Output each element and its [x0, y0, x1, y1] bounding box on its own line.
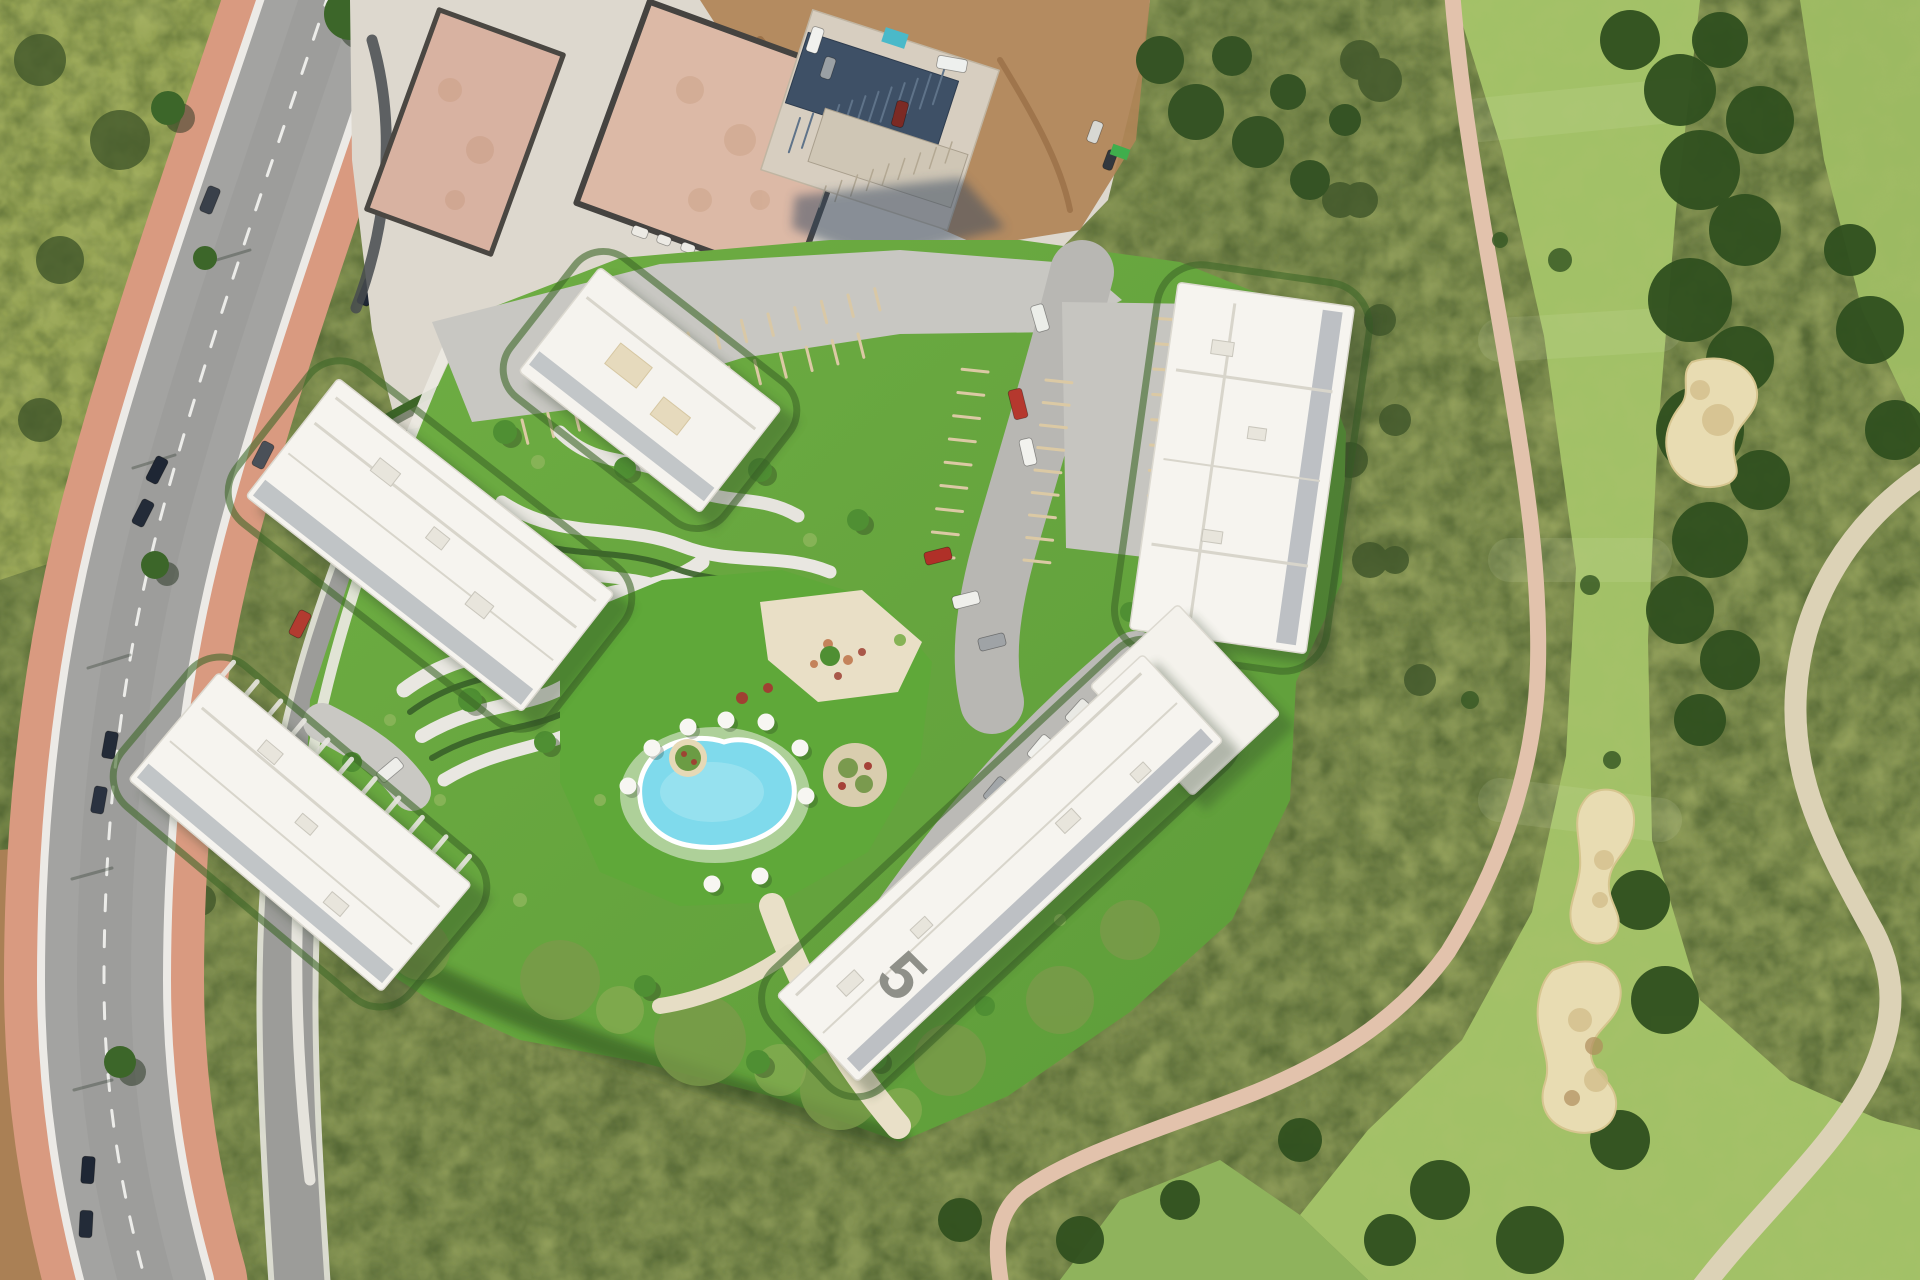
aerial-screenshot-root: 5	[0, 0, 1920, 1280]
lawn-bushes-item	[894, 634, 906, 646]
fairway-mow-stripes-item	[1500, 330, 1660, 340]
flower-clusters-item	[736, 692, 748, 704]
scrub-left-clumps-item	[36, 236, 84, 284]
play-equipment-item	[843, 655, 853, 665]
lawn-bushes-item	[803, 533, 817, 547]
slab-west-texture-item	[466, 136, 494, 164]
play-equipment-dark-item	[834, 672, 842, 680]
play-equipment-item	[810, 660, 818, 668]
bunker-brown-patches-item	[1585, 1037, 1603, 1055]
scrub-strip-right-of-site-item	[1358, 58, 1402, 102]
fairway-small-trees-item	[1548, 248, 1572, 272]
golf-tree-band-item	[1631, 966, 1699, 1034]
golf-tree-band-item	[1364, 1214, 1416, 1266]
pool-umbrellas-item	[620, 778, 637, 795]
lawn-trees-item	[493, 420, 517, 444]
pool-umbrellas-item	[792, 740, 809, 757]
flower-clusters-item	[864, 762, 872, 770]
golf-tree-band-item	[1646, 576, 1714, 644]
bunker-sand-shading-item	[1690, 380, 1710, 400]
fairway-small-trees-item	[1492, 232, 1508, 248]
golf-tree-band-item	[1600, 10, 1660, 70]
golf-tree-band-item	[1709, 194, 1781, 266]
bunker-sand-shading-item	[1594, 850, 1614, 870]
pool-island-planting	[675, 745, 701, 771]
slab-east-texture-item	[676, 76, 704, 104]
trees-east-of-construction-item	[1136, 36, 1184, 84]
street-trees-item	[151, 91, 185, 125]
slab-east-texture-item	[688, 188, 712, 212]
golf-tree-band-item	[1726, 86, 1794, 154]
golf-tree-band-item	[1674, 694, 1726, 746]
scrub-strip-right-of-site-item	[1352, 542, 1388, 578]
bunker-sand-shading-item	[1584, 1068, 1608, 1092]
play-equipment-dark-item	[858, 648, 866, 656]
golf-tree-band-item	[1660, 130, 1740, 210]
fairway-small-trees-item	[1580, 575, 1600, 595]
flower-clusters-item	[838, 782, 846, 790]
golf-tree-band-item	[1160, 1180, 1200, 1220]
bunker-sand-shading-item	[1568, 1008, 1592, 1032]
parked-cars-main-road-item	[79, 1210, 93, 1238]
lawn-trees-item	[820, 646, 840, 666]
flower-clusters-item	[763, 683, 773, 693]
pool-umbrellas-item	[644, 740, 661, 757]
bunker-sand-shading-item	[1702, 404, 1734, 436]
golf-tree-band-item	[1278, 1118, 1322, 1162]
playground-planting-item	[855, 775, 873, 793]
scrub-strip-right-of-site-item	[1342, 182, 1378, 218]
lawn-trees-item	[634, 975, 656, 997]
scrub-strip-right-of-site-item	[1379, 404, 1411, 436]
pool-island-flowers-item	[681, 751, 687, 757]
lawn-trees-item	[746, 1050, 770, 1074]
street-trees-item	[193, 246, 217, 270]
scrub-left-clumps-item	[90, 110, 150, 170]
parked-cars-main-road-item	[81, 1156, 96, 1184]
street-trees-item	[141, 551, 169, 579]
golf-tree-band-item	[1410, 1160, 1470, 1220]
trees-east-of-construction-item	[1168, 84, 1224, 140]
bunker-sand-shading-item	[1592, 892, 1608, 908]
golf-tree-band-item	[1672, 502, 1748, 578]
trees-east-of-construction-item	[1329, 104, 1361, 136]
golf-tree-band-item	[1692, 12, 1748, 68]
pool-umbrellas-item	[704, 876, 721, 893]
building3-roof-box-3	[1201, 529, 1222, 544]
fairway-texture	[1360, 0, 1920, 1280]
pool-umbrellas-item	[752, 868, 769, 885]
lawn-bushes-item	[384, 714, 396, 726]
fairway-small-trees-item	[1461, 691, 1479, 709]
golf-tree-band-item	[1836, 296, 1904, 364]
pool-umbrellas-item	[680, 719, 697, 736]
golf-tree-band-item	[938, 1198, 982, 1242]
trees-east-of-construction-item	[1212, 36, 1252, 76]
trees-east-of-construction-item	[1290, 160, 1330, 200]
golf-tree-band-item	[1700, 630, 1760, 690]
lawn-bushes-item	[594, 794, 606, 806]
slab-west-texture-item	[438, 78, 462, 102]
pool-umbrellas-item	[798, 788, 815, 805]
golf-tree-band-item	[1496, 1206, 1564, 1274]
golf-tree-band-item	[1730, 450, 1790, 510]
scrub-left-clumps-item	[18, 398, 62, 442]
building3-roof-box-2	[1247, 427, 1266, 441]
pool-umbrellas-item	[758, 714, 775, 731]
lawn-bushes-item	[434, 794, 446, 806]
fairway-small-trees-item	[1603, 751, 1621, 769]
lawn-trees-item	[534, 731, 556, 753]
golf-tree-band-item	[1648, 258, 1732, 342]
rough-grass-patches-item	[520, 940, 600, 1020]
lawn-bushes-item	[531, 455, 545, 469]
rough-grass-patches-item	[1026, 966, 1094, 1034]
slab-east-texture-item	[750, 190, 770, 210]
trees-east-of-construction-item	[1270, 74, 1306, 110]
building3-roof-box-1	[1211, 340, 1235, 357]
slab-east-texture-item	[724, 124, 756, 156]
trees-east-of-construction-item	[1232, 116, 1284, 168]
golf-tree-band-item	[1824, 224, 1876, 276]
playground-planting-item	[838, 758, 858, 778]
pool-island-flowers-item	[691, 759, 697, 765]
bunker-brown-patches-item	[1564, 1090, 1580, 1106]
scrub-left-clumps-item	[14, 34, 66, 86]
lawn-trees-item	[847, 509, 869, 531]
slab-west-texture-item	[445, 190, 465, 210]
lawn-bushes-item	[513, 893, 527, 907]
scrub-strip-right-of-site-item	[1404, 664, 1436, 696]
golf-tree-band-item	[1644, 54, 1716, 126]
rough-grass-patches-item	[1100, 900, 1160, 960]
aerial-site-plan: 5	[0, 0, 1920, 1280]
street-trees-item	[104, 1046, 136, 1078]
pool-umbrellas-item	[718, 712, 735, 729]
golf-tree-band-item	[1056, 1216, 1104, 1264]
